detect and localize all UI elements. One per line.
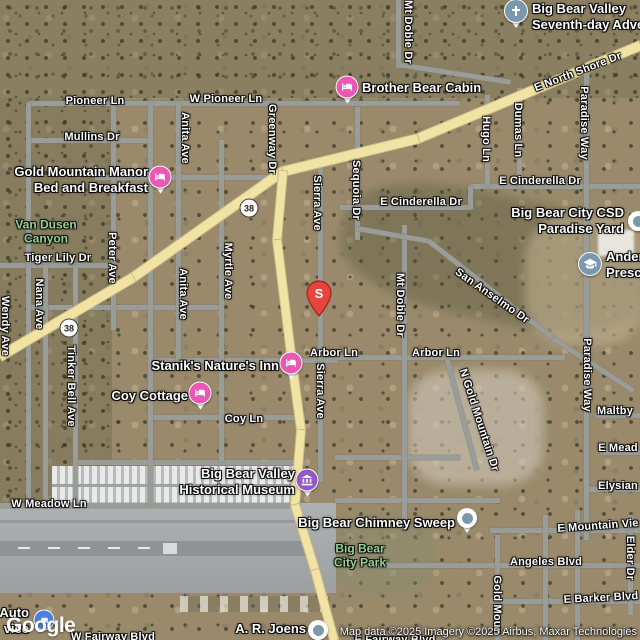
street-label: Maltby <box>597 405 633 417</box>
street-label: Angeles Blvd <box>510 556 582 568</box>
street-label: Arbor Ln <box>310 347 358 359</box>
park-label: Big BearCity Park <box>334 542 386 571</box>
dot-icon[interactable] <box>308 620 328 640</box>
street-label: Mullins Dr <box>64 131 119 143</box>
place-label[interactable]: Stanik's Nature's Inn <box>151 358 279 374</box>
street-label: Elder Dr <box>624 536 636 580</box>
church-pin-icon[interactable] <box>504 0 528 23</box>
street-label: W Fairway Blvd <box>71 631 155 640</box>
street-label: Sierra Ave <box>311 175 323 231</box>
street-label: Greenway Dr <box>266 104 278 174</box>
street-label: Peter Ave <box>106 232 118 284</box>
street-label: Sequoia Dr <box>350 160 362 220</box>
buildings-row <box>180 596 330 612</box>
road <box>468 186 473 209</box>
place-label-line: Paradise Yard <box>511 221 624 237</box>
airport-runway <box>0 541 312 556</box>
pin-dot-icon[interactable] <box>457 508 477 528</box>
park-label-line: City Park <box>334 556 386 570</box>
street-label: Mt Doble Dr <box>394 273 406 337</box>
place-label-line: A. R. Joens <box>235 621 306 637</box>
street-label: Tinker Bell Ave <box>65 345 77 426</box>
place-label[interactable]: Coy Cottage <box>111 388 188 404</box>
place-label-line: Big Bear Chimney Sweep <box>298 515 455 531</box>
place-label-line: Big Bear Valley <box>179 466 295 482</box>
lodging-icon[interactable] <box>189 382 212 405</box>
place-label[interactable]: A. R. Joens <box>235 621 306 637</box>
place-label-line: Gold Mountain Manor <box>14 164 148 180</box>
route-38-shield: 38 <box>240 199 259 218</box>
road <box>335 455 460 460</box>
street-label: Sierra Ave <box>314 363 326 419</box>
place-label-line: Ander <box>606 249 640 265</box>
school-icon[interactable] <box>578 252 602 276</box>
park-label-line: Canyon <box>15 232 76 246</box>
place-label-line: Stanik's Nature's Inn <box>151 358 279 374</box>
place-label-line: Bed and Breakfast <box>14 180 148 196</box>
place-label-line: Presc <box>606 265 640 281</box>
street-label: Elysian <box>598 480 638 492</box>
road <box>396 0 401 68</box>
place-label-line: Big Bear Valley <box>532 1 640 17</box>
road <box>148 103 153 505</box>
street-label: W Pioneer Ln <box>190 93 263 105</box>
park-label-line: Big Bear <box>334 542 386 556</box>
street-label: Dumas Ln <box>512 103 524 158</box>
park-label: Van DusenCanyon <box>15 218 76 247</box>
street-label: Tiger Lily Dr <box>25 252 92 264</box>
street-label: Paradise Way <box>578 86 590 160</box>
street-label: W Meadow Ln <box>11 498 87 510</box>
street-label: E Mead <box>598 442 638 454</box>
street-label: Mt Doble Dr <box>402 0 414 64</box>
street-label: Wendy Ave <box>0 296 11 356</box>
road <box>370 563 640 568</box>
place-label-line: Coy Cottage <box>111 388 188 404</box>
red-s-map-pin[interactable]: S <box>306 280 332 317</box>
street-label: Anita Ave <box>177 268 189 320</box>
road <box>75 460 305 465</box>
street-label: Arbor Ln <box>412 347 460 359</box>
road <box>219 140 224 462</box>
pin-letter: S <box>315 286 324 301</box>
street-label: Nana Ave <box>33 279 45 330</box>
place-label-line: Historical Museum <box>179 482 295 498</box>
place-label[interactable]: Big Bear ValleySeventh-day Adve <box>532 1 640 34</box>
place-label[interactable]: Big Bear ValleyHistorical Museum <box>179 466 295 499</box>
place-label[interactable]: Big Bear City CSDParadise Yard <box>511 205 624 238</box>
street-label: Myrtle Ave <box>222 243 234 300</box>
lodging-icon[interactable] <box>336 76 359 99</box>
street-label: E Cinderella Dr <box>380 196 462 208</box>
road <box>402 225 407 530</box>
dot-icon[interactable] <box>628 211 640 231</box>
place-label[interactable]: Big Bear Chimney Sweep <box>298 515 455 531</box>
lodging-icon[interactable] <box>280 352 303 375</box>
lodging-icon[interactable] <box>149 166 172 189</box>
runway-marking <box>18 547 30 549</box>
park-label-line: Van Dusen <box>15 218 76 232</box>
place-label[interactable]: AnderPresc <box>606 249 640 282</box>
place-label-line: Big Bear City CSD <box>511 205 624 221</box>
map-attribution[interactable]: Map data ©2025 Imagery ©2025 Airbus, Max… <box>340 626 637 638</box>
road <box>335 498 500 503</box>
satellite-map-canvas[interactable]: Pioneer LnW Pioneer LnMullins DrAnita Av… <box>0 0 640 640</box>
place-label[interactable]: Brother Bear Cabin <box>362 80 481 96</box>
street-label: Hugo Ln <box>480 116 492 162</box>
street-label: Anita Ave <box>179 112 191 164</box>
museum-icon[interactable] <box>296 469 319 492</box>
street-label: Pioneer Ln <box>66 95 125 107</box>
place-label-line: Seventh-day Adve <box>532 17 640 33</box>
airport-taxiway-line <box>0 520 300 523</box>
street-label: Paradise Way <box>581 338 593 412</box>
place-label[interactable]: Gold Mountain ManorBed and Breakfast <box>14 164 148 197</box>
runway-threshold <box>163 543 177 554</box>
road <box>28 305 220 310</box>
google-logo: Google <box>6 614 75 638</box>
route-38-shield: 38 <box>60 319 79 338</box>
street-label: E Cinderella Dr <box>499 175 581 187</box>
street-label: Coy Ln <box>225 413 263 425</box>
road <box>543 515 548 640</box>
place-label-line: Brother Bear Cabin <box>362 80 481 96</box>
